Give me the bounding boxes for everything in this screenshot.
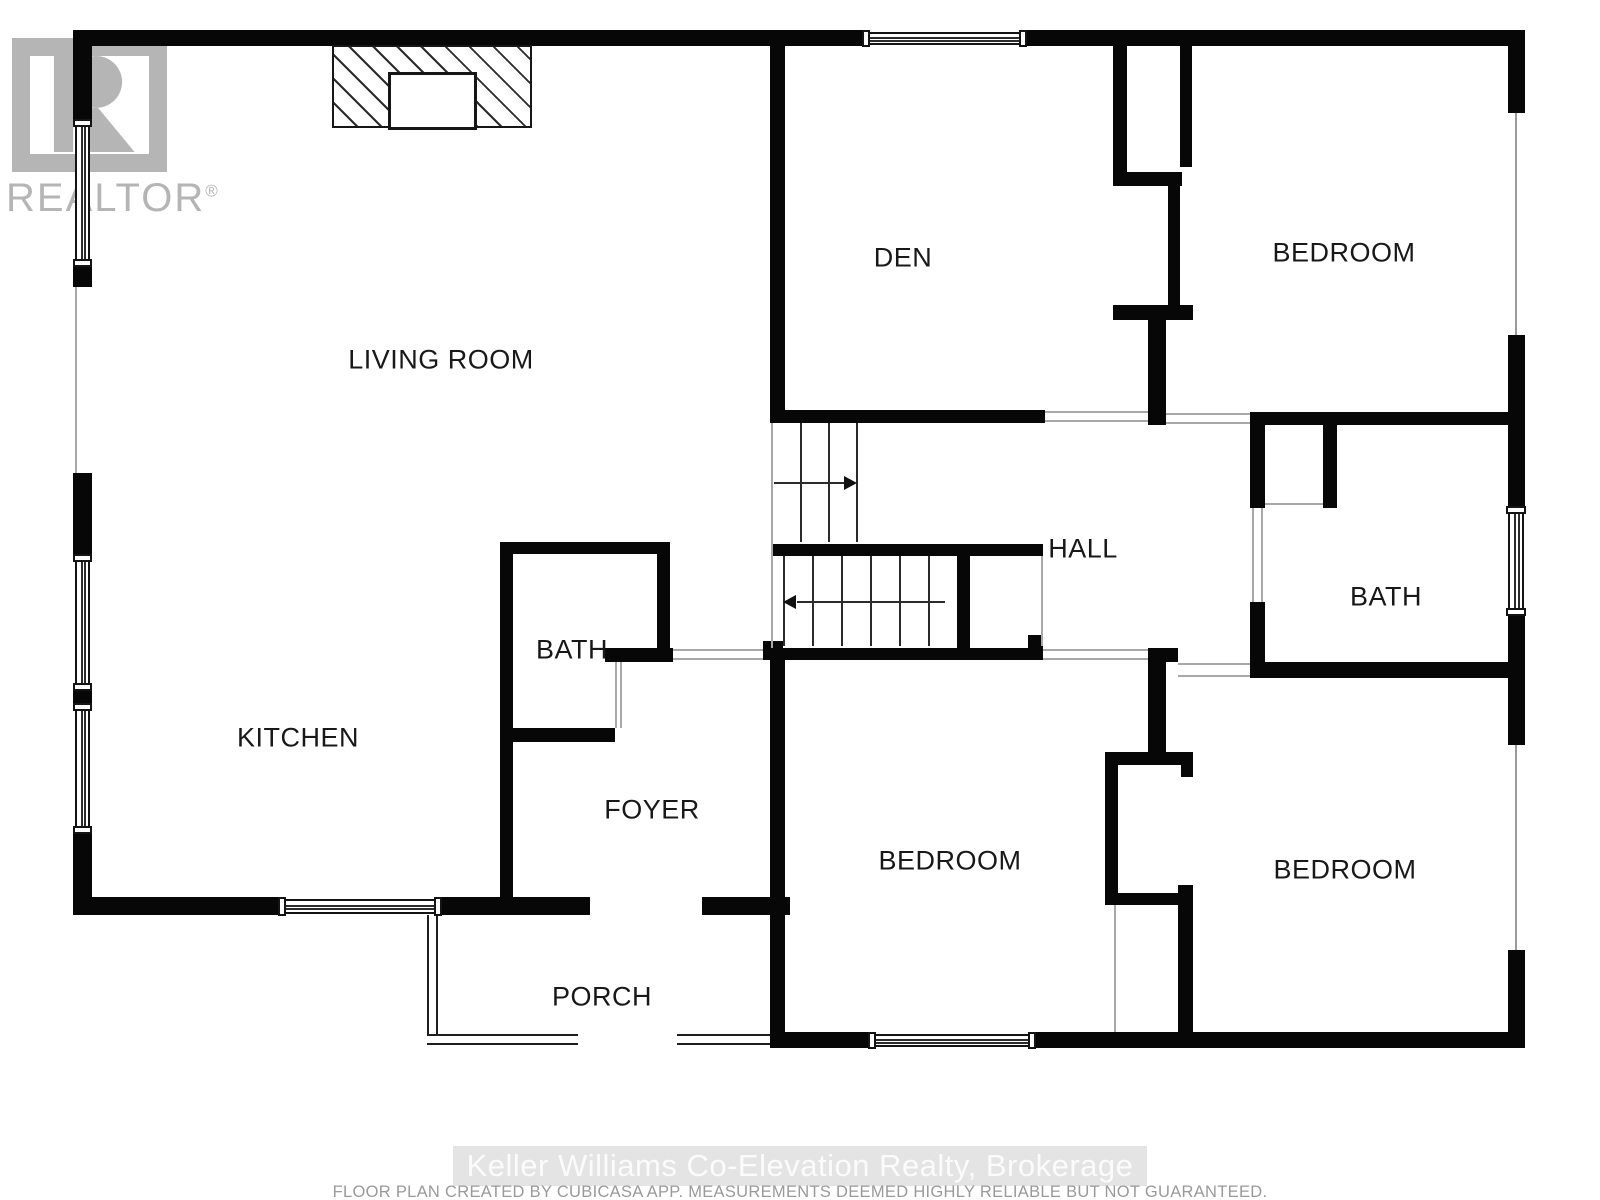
wall (1508, 335, 1525, 510)
wall (772, 1032, 872, 1048)
window (75, 707, 90, 830)
window-glazing-line (81, 560, 83, 685)
opening-line (1041, 556, 1043, 646)
room-label-bedroom-middle: BEDROOM (878, 846, 1021, 877)
porch-edge (427, 915, 438, 1045)
wall (770, 660, 785, 1048)
wall (1105, 752, 1118, 905)
window-glazing-line (874, 1042, 1030, 1044)
window-end-cap (434, 897, 442, 916)
room-label-den: DEN (874, 243, 933, 274)
window-glazing-line (284, 905, 436, 907)
wall (1105, 752, 1193, 765)
wall (763, 641, 783, 660)
window-end-cap (73, 259, 92, 267)
opening-line (771, 423, 773, 648)
opening-line (620, 662, 622, 728)
stairs-down-arrow-icon (783, 595, 796, 609)
room-label-porch: PORCH (552, 982, 652, 1013)
wall (1250, 412, 1265, 508)
opening-line (1265, 503, 1323, 505)
wall (1323, 412, 1337, 508)
opening-line (1114, 905, 1116, 1032)
wall (73, 897, 282, 915)
room-label-bedroom-bottom-right: BEDROOM (1273, 855, 1416, 886)
room-label-foyer: FOYER (604, 795, 700, 826)
floor-plan-disclaimer: FLOOR PLAN CREATED BY CUBICASA APP. MEAS… (0, 1183, 1600, 1200)
porch-edge (427, 1034, 578, 1045)
window-end-cap (278, 897, 286, 916)
wall (772, 410, 1045, 423)
wall (500, 542, 670, 554)
opening-line (673, 658, 763, 660)
fireplace-icon (332, 45, 532, 128)
wall (1032, 1032, 1525, 1048)
window-glazing-line (1514, 512, 1516, 610)
room-label-living-room: LIVING ROOM (348, 345, 534, 376)
window-end-cap (862, 30, 870, 47)
window-end-cap (73, 683, 92, 691)
window (282, 899, 438, 914)
opening-line (1261, 508, 1263, 602)
wall (1168, 183, 1180, 310)
wall (513, 728, 615, 742)
window-end-cap (73, 119, 92, 127)
window-end-cap (1506, 506, 1526, 514)
wall (1508, 612, 1525, 745)
opening-line (615, 662, 617, 728)
opening-line (1166, 422, 1250, 424)
brokerage-watermark: Keller Williams Co-Elevation Realty, Bro… (0, 1146, 1600, 1186)
window-end-cap (1028, 1032, 1036, 1049)
wall (1180, 46, 1192, 167)
wall (657, 542, 670, 662)
porch-edge (677, 1034, 770, 1045)
wall (438, 897, 590, 915)
floor-plan-canvas: REALTOR® LIVING ROOM DEN BEDROOM HALL BA… (0, 0, 1600, 1200)
window-glazing-line (84, 125, 86, 261)
window (866, 32, 1023, 45)
opening-line (75, 287, 77, 473)
window (75, 123, 90, 263)
wall (1148, 320, 1166, 425)
wall (1181, 752, 1193, 777)
wall (1508, 30, 1525, 113)
stair-tread-line (774, 482, 846, 484)
realtor-logo-text: REALTOR® (6, 176, 220, 221)
wall (772, 544, 1043, 556)
window-end-cap (1506, 608, 1526, 616)
wall (500, 542, 513, 915)
window-thin (1515, 745, 1517, 950)
wall (75, 30, 866, 46)
wall (73, 473, 92, 558)
window-end-cap (868, 1032, 876, 1049)
opening-line (1043, 649, 1148, 651)
wall (1023, 30, 1525, 46)
window-glazing-line (81, 709, 83, 828)
window-glazing-line (868, 40, 1021, 42)
room-label-bath-middle: BATH (536, 635, 608, 666)
opening-line (673, 649, 763, 651)
window-glazing-line (868, 37, 1021, 39)
wall (1250, 662, 1508, 678)
opening-line (1043, 658, 1148, 660)
window-end-cap (1019, 30, 1027, 47)
wall (73, 30, 92, 123)
wall (1113, 40, 1127, 186)
wall (1178, 885, 1193, 1048)
opening-line (1178, 663, 1250, 665)
window-end-cap (73, 703, 92, 711)
opening-line (1045, 420, 1148, 422)
wall (957, 553, 970, 648)
window-glazing-line (874, 1039, 1030, 1041)
window (1508, 510, 1524, 612)
opening-line (1045, 411, 1148, 413)
wall (770, 46, 785, 423)
wall (1250, 412, 1508, 425)
stair-tread-line (797, 601, 945, 603)
window-end-cap (73, 554, 92, 562)
window-glazing-line (84, 560, 86, 685)
room-label-hall: HALL (1048, 534, 1118, 565)
opening-line (1166, 413, 1250, 415)
wall (1113, 305, 1193, 320)
registered-mark: ® (205, 182, 220, 201)
room-label-bedroom-top-right: BEDROOM (1272, 238, 1415, 269)
opening-line (1178, 675, 1250, 677)
opening-line (1252, 508, 1254, 602)
wall (763, 648, 1043, 660)
fireplace-hearth (388, 72, 477, 130)
window (75, 558, 90, 687)
window-thin (1515, 113, 1517, 335)
wall (605, 648, 673, 662)
window (872, 1034, 1032, 1047)
window-glazing-line (84, 709, 86, 828)
room-label-bath-right: BATH (1350, 582, 1422, 613)
room-label-kitchen: KITCHEN (237, 723, 359, 754)
window-glazing-line (81, 125, 83, 261)
window-end-cap (73, 826, 92, 834)
window-glazing-line (1518, 512, 1520, 610)
stairs-up-arrow-icon (844, 476, 857, 490)
wall (1148, 650, 1166, 757)
window-glazing-line (284, 908, 436, 910)
